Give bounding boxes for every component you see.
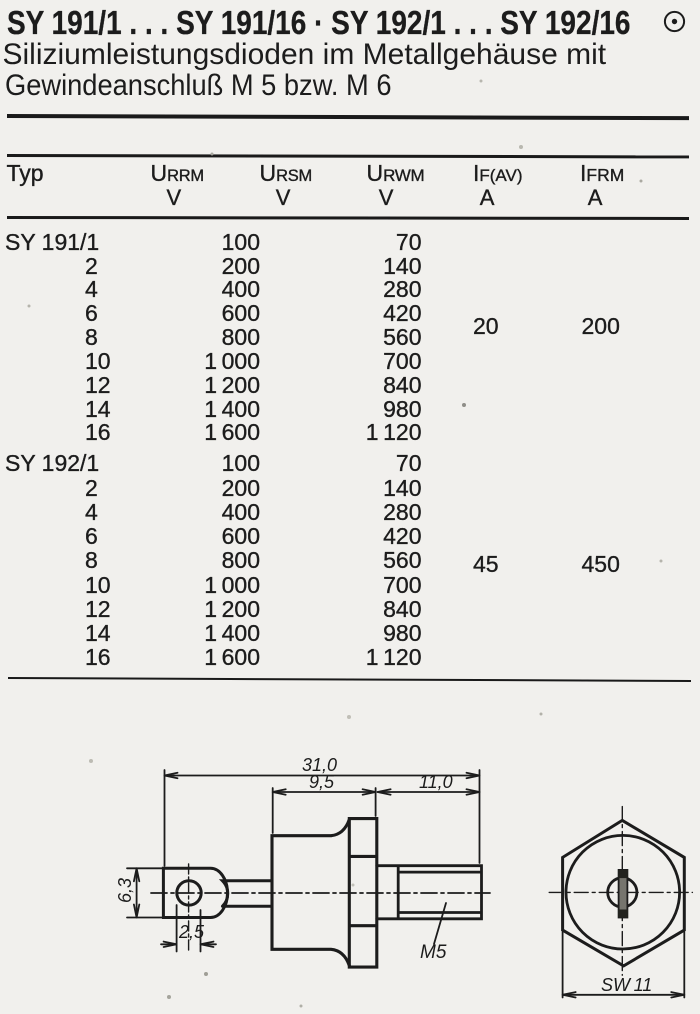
svg-text:2,5: 2,5	[178, 922, 205, 942]
svg-text:6,3: 6,3	[115, 878, 135, 903]
svg-text:M5: M5	[420, 942, 447, 963]
svg-text:SW 11: SW 11	[601, 975, 652, 995]
svg-text:11,0: 11,0	[419, 772, 453, 792]
svg-text:9,5: 9,5	[309, 772, 335, 792]
